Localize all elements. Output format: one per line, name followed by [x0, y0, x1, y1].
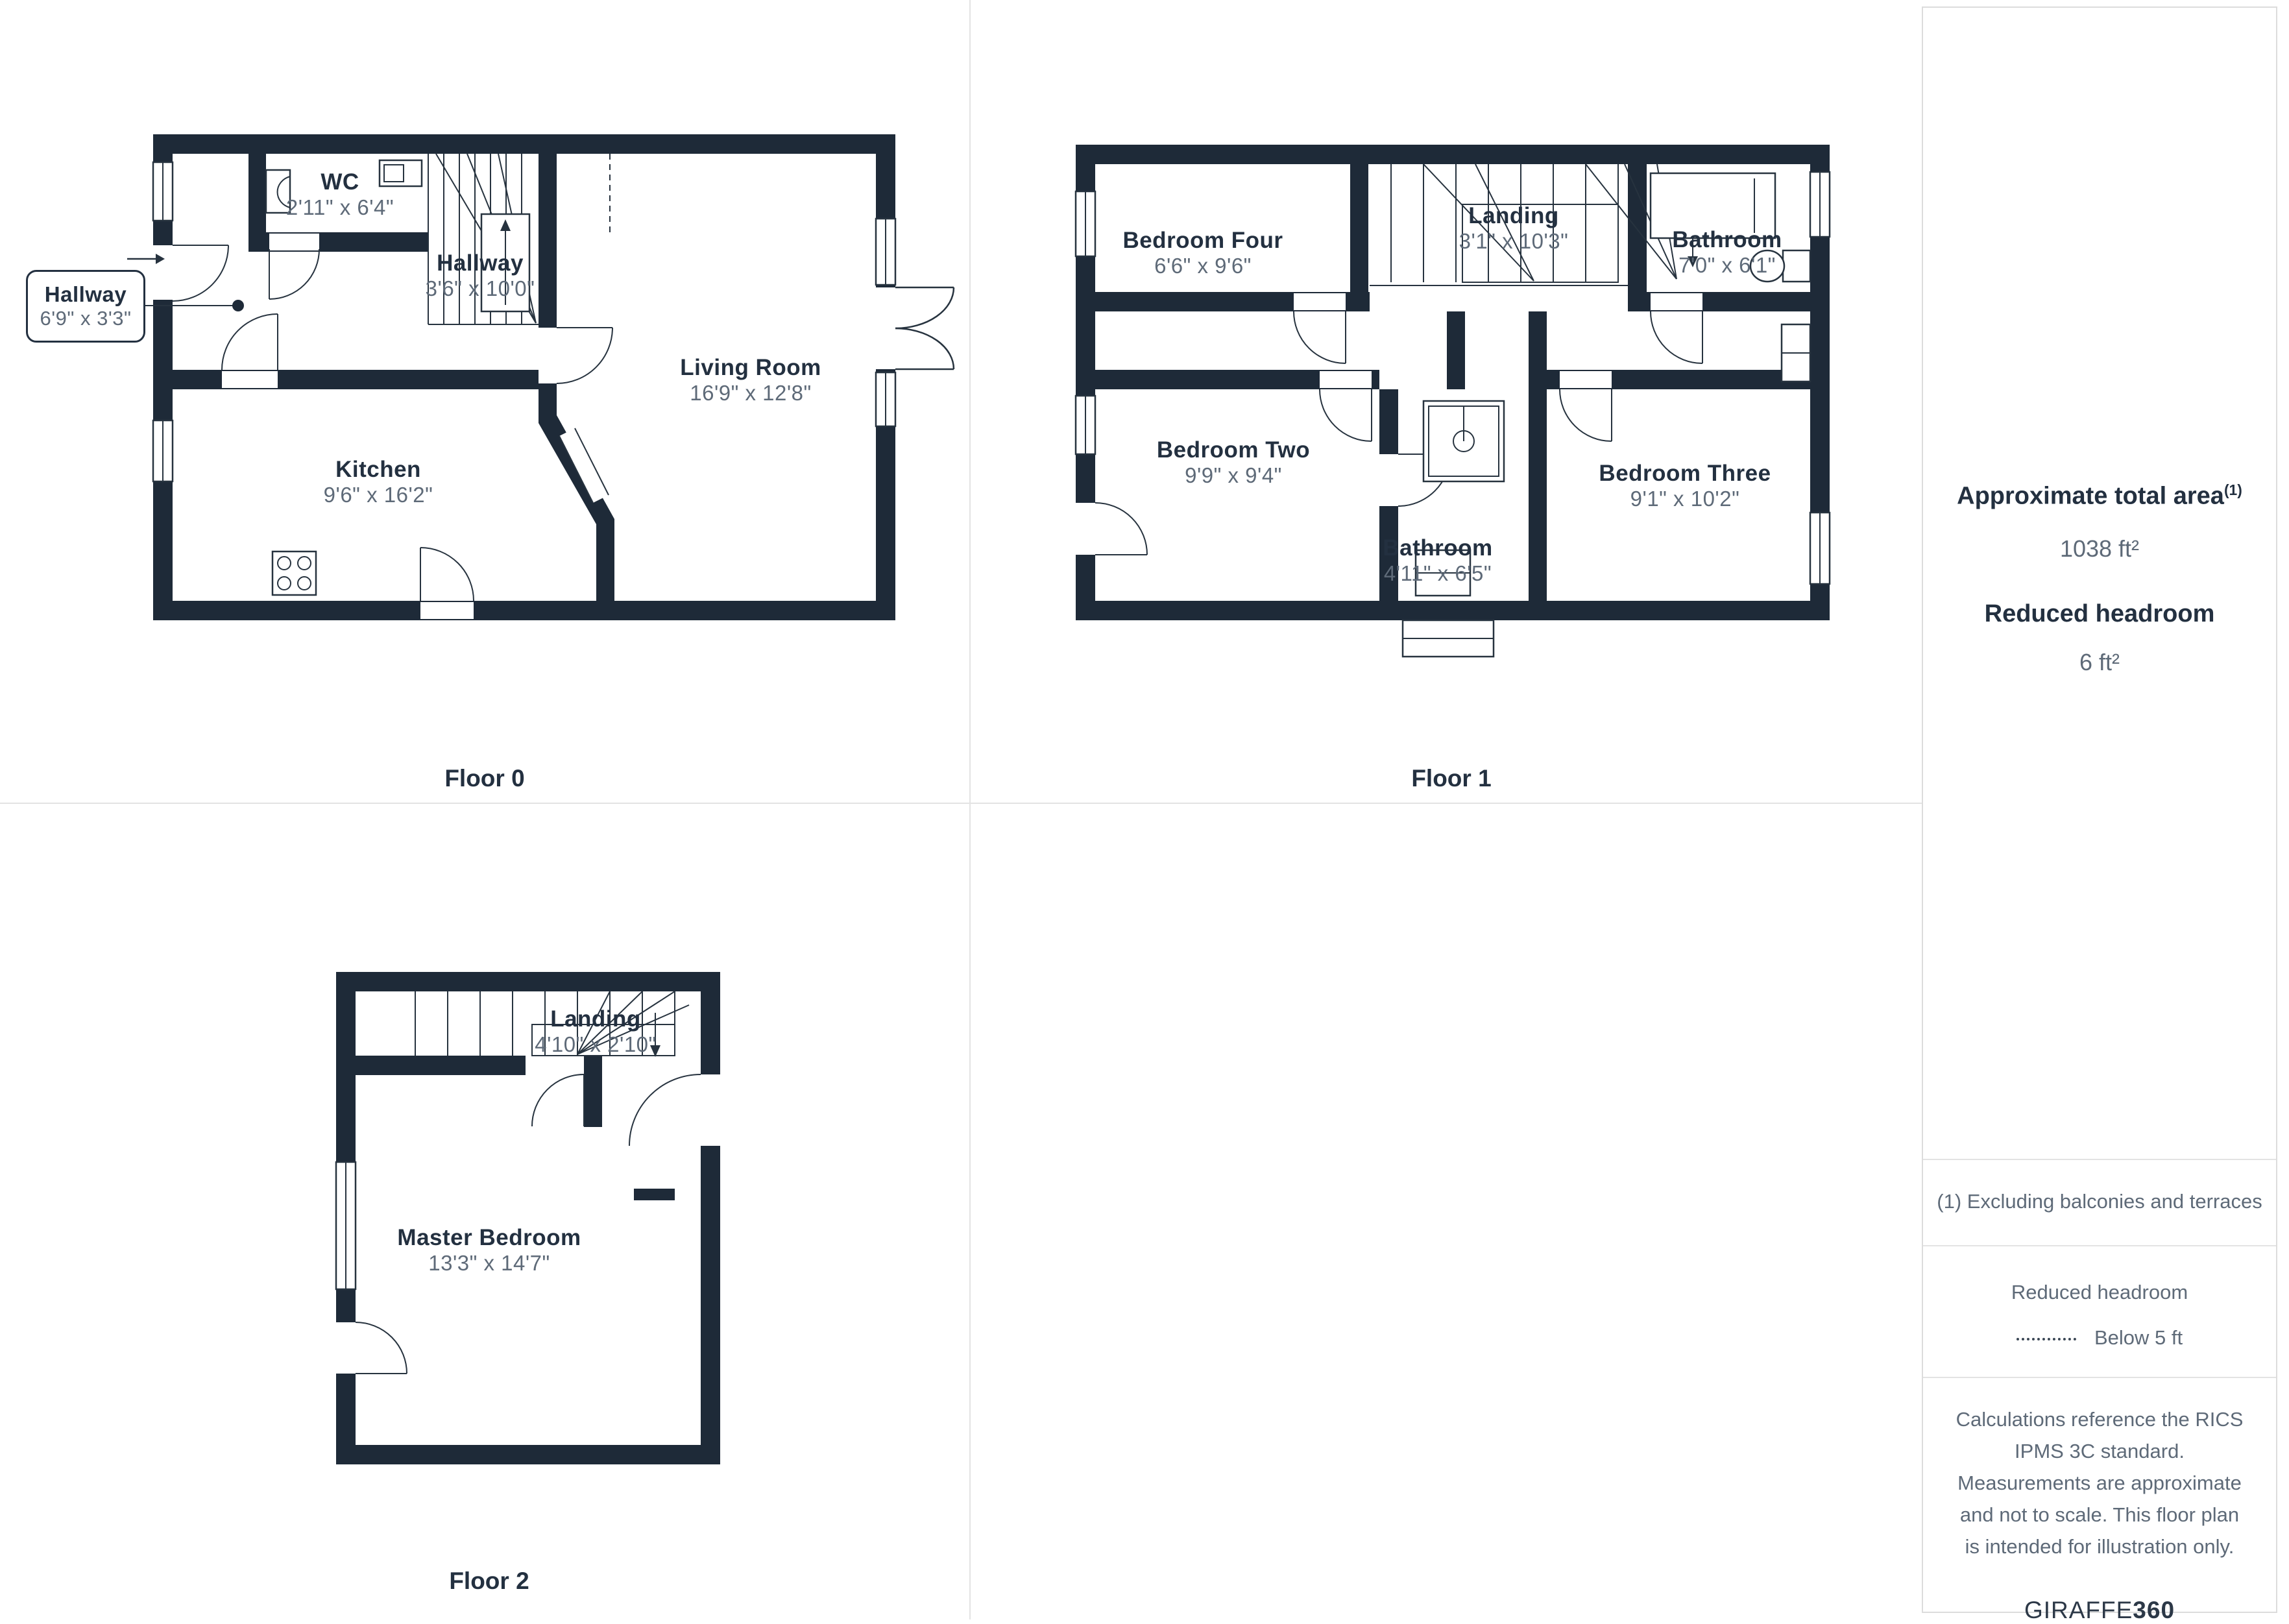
- footnote-section: (1) Excluding balconies and terraces: [1923, 1190, 2276, 1213]
- floor2-label: Floor 2: [449, 1568, 529, 1595]
- callout-name: Hallway: [45, 282, 127, 307]
- room-name: Landing: [535, 1006, 656, 1032]
- legend-row: Below 5 ft: [1923, 1326, 2276, 1350]
- room-label-landing: Landing 3'1" x 10'3": [1459, 203, 1569, 254]
- room-dims: 4'11" x 6'5": [1383, 561, 1492, 586]
- legend-title: Reduced headroom: [1923, 1281, 2276, 1304]
- room-name: Kitchen: [324, 457, 433, 483]
- total-area-section: Approximate total area(1) 1038 ft² Reduc…: [1923, 481, 2276, 676]
- room-dims: 9'9" x 9'4": [1157, 463, 1310, 488]
- room-name: Bedroom Four: [1122, 228, 1283, 254]
- footnote-text: (1) Excluding balconies and terraces: [1923, 1190, 2276, 1213]
- room-name: Master Bedroom: [397, 1225, 581, 1251]
- room-dims: 13'3" x 14'7": [397, 1251, 581, 1276]
- sidebar-divider-1: [1923, 1159, 2276, 1160]
- room-label-bedroom-four: Bedroom Four 6'6" x 9'6": [1122, 228, 1283, 278]
- room-dims: 7'0" x 6'1": [1672, 253, 1782, 278]
- room-name: Bedroom Three: [1599, 461, 1771, 487]
- room-label-wc: WC 2'11" x 6'4": [286, 169, 394, 220]
- room-dims: 2'11" x 6'4": [286, 195, 394, 220]
- room-label-bedroom-three: Bedroom Three 9'1" x 10'2": [1599, 461, 1771, 511]
- disclaimer-section: Calculations reference the RICS IPMS 3C …: [1923, 1404, 2276, 1624]
- room-label-landing-f2: Landing 4'10" x 2'10": [535, 1006, 656, 1057]
- disclaimer-text: Calculations reference the RICS IPMS 3C …: [1953, 1404, 2246, 1563]
- hallway-callout: Hallway 6'9" x 3'3": [26, 270, 145, 343]
- room-label-hallway: Hallway 3'6" x 10'0": [426, 250, 535, 301]
- room-dims: 3'6" x 10'0": [426, 276, 535, 301]
- room-dims: 3'1" x 10'3": [1459, 229, 1569, 254]
- room-label-bathroom-top: Bathroom 7'0" x 6'1": [1672, 227, 1782, 278]
- sidebar-divider-3: [1923, 1377, 2276, 1378]
- floor1-label: Floor 1: [1411, 765, 1491, 792]
- sidebar-divider-2: [1923, 1245, 2276, 1246]
- room-label-bathroom-small: Bathroom 4'11" x 6'5": [1383, 535, 1492, 586]
- room-name: Landing: [1459, 203, 1569, 229]
- room-label-master-bedroom: Master Bedroom 13'3" x 14'7": [397, 1225, 581, 1276]
- room-dims: 4'10" x 2'10": [535, 1032, 656, 1057]
- reduced-headroom-heading: Reduced headroom: [1923, 600, 2276, 628]
- room-dims: 9'1" x 10'2": [1599, 487, 1771, 511]
- floor2-cell: Landing 4'10" x 2'10" Master Bedroom 13'…: [0, 804, 969, 1619]
- room-name: Bathroom: [1383, 535, 1492, 561]
- room-name: Bedroom Two: [1157, 437, 1310, 463]
- total-area-value: 1038 ft²: [1923, 535, 2276, 563]
- floor1-plan-drawing: [969, 0, 1934, 803]
- room-dims: 9'6" x 16'2": [324, 483, 433, 507]
- floor1-cell: Bedroom Four 6'6" x 9'6" Landing 3'1" x …: [969, 0, 1934, 803]
- room-label-bedroom-two: Bedroom Two 9'9" x 9'4": [1157, 437, 1310, 488]
- room-name: Living Room: [680, 355, 821, 381]
- room-dims: 6'6" x 9'6": [1122, 254, 1283, 278]
- room-label-living-room: Living Room 16'9" x 12'8": [680, 355, 821, 406]
- room-name: Hallway: [426, 250, 535, 276]
- floor0-plan-drawing: [0, 0, 969, 803]
- room-name: Bathroom: [1672, 227, 1782, 253]
- floor2-plan-drawing: [0, 804, 969, 1619]
- total-area-heading: Approximate total area(1): [1923, 481, 2276, 511]
- floor0-cell: WC 2'11" x 6'4" Hallway 3'6" x 10'0" Liv…: [0, 0, 969, 803]
- callout-dims: 6'9" x 3'3": [40, 307, 131, 330]
- room-label-kitchen: Kitchen 9'6" x 16'2": [324, 457, 433, 507]
- floorplan-page: { "floors": [ { "label": "Floor 0", "roo…: [0, 0, 2289, 1619]
- giraffe360-logo: GIRAFFE360: [1923, 1597, 2276, 1624]
- room-name: WC: [286, 169, 394, 195]
- legend-section: Reduced headroom Below 5 ft: [1923, 1281, 2276, 1350]
- reduced-headroom-value: 6 ft²: [1923, 649, 2276, 676]
- footnote-marker: (1): [2224, 481, 2242, 498]
- reduced-headroom-dash-icon: [2016, 1338, 2076, 1340]
- legend-item-label: Below 5 ft: [2094, 1326, 2183, 1349]
- room-dims: 16'9" x 12'8": [680, 381, 821, 406]
- floor0-label: Floor 0: [444, 765, 524, 792]
- summary-sidebar: Approximate total area(1) 1038 ft² Reduc…: [1922, 6, 2277, 1613]
